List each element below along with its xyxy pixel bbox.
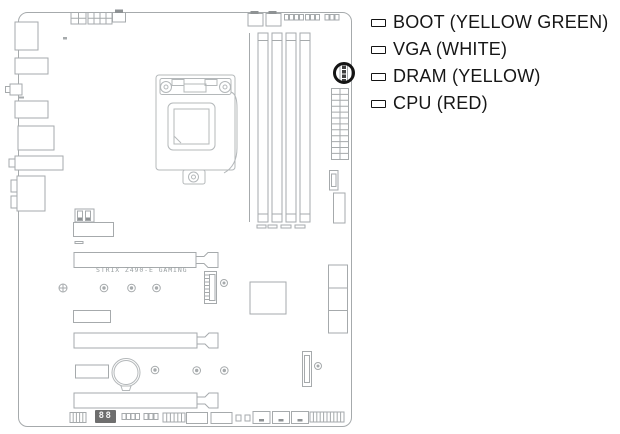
legend-label-vga: VGA (WHITE)	[393, 39, 507, 60]
cpu-power-connectors	[71, 10, 126, 25]
legend-item-dram: DRAM (YELLOW)	[371, 66, 609, 87]
mid-board-headers	[74, 209, 114, 378]
led-rectangle-icon	[371, 73, 386, 81]
legend-label-boot: BOOT (YELLOW GREEN)	[393, 12, 609, 33]
qcode-display: 88	[95, 410, 116, 423]
dimm-slots	[250, 33, 311, 222]
legend-label-dram: DRAM (YELLOW)	[393, 66, 541, 87]
legend-label-cpu: CPU (RED)	[393, 93, 488, 114]
top-fan-headers	[248, 11, 339, 26]
atx-24pin-connector	[332, 89, 349, 160]
legend-item-vga: VGA (WHITE)	[371, 39, 609, 60]
screw-holes	[59, 280, 322, 375]
qled-cluster	[335, 64, 354, 83]
cmos-battery	[112, 359, 140, 391]
rear-io-ports	[6, 22, 68, 211]
qled-diagram-page: STRIX Z490-E GAMING 88 BOOT (YELLOW GREE…	[0, 0, 620, 434]
board-model-silkscreen: STRIX Z490-E GAMING	[96, 266, 187, 274]
led-rectangle-icon	[371, 46, 386, 54]
qled-legend: BOOT (YELLOW GREEN) VGA (WHITE) DRAM (YE…	[371, 12, 609, 120]
led-rectangle-icon	[371, 19, 386, 27]
legend-item-boot: BOOT (YELLOW GREEN)	[371, 12, 609, 33]
chipset	[250, 282, 286, 314]
right-edge-connectors	[330, 171, 346, 224]
legend-item-cpu: CPU (RED)	[371, 93, 609, 114]
cpu-socket	[156, 75, 237, 184]
component-marks	[257, 225, 305, 228]
led-rectangle-icon	[371, 100, 386, 108]
pcie-slots	[74, 253, 218, 409]
sata-ports	[329, 265, 348, 333]
